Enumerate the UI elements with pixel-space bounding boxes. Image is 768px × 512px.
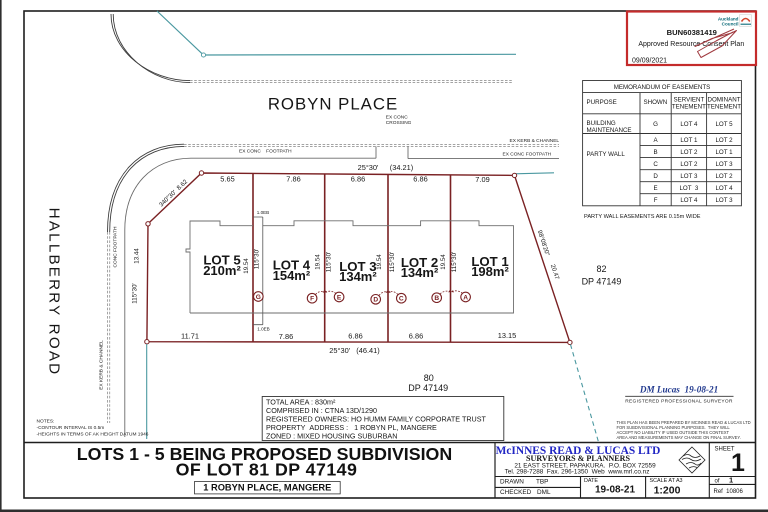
svg-text:F: F bbox=[310, 296, 314, 303]
svg-text:19.54: 19.54 bbox=[243, 258, 250, 274]
svg-text:B: B bbox=[434, 295, 439, 302]
svg-text:6.86: 6.86 bbox=[413, 174, 427, 183]
svg-text:7.09: 7.09 bbox=[475, 175, 489, 184]
svg-text:7.86: 7.86 bbox=[286, 174, 300, 183]
svg-text:LOT 3: LOT 3 bbox=[679, 185, 698, 192]
svg-text:115°30': 115°30' bbox=[254, 249, 261, 269]
svg-text:19-08-21: 19-08-21 bbox=[595, 485, 635, 496]
svg-text:PARTY WALL: PARTY WALL bbox=[587, 151, 626, 158]
svg-text:F: F bbox=[654, 197, 658, 204]
svg-text:CONC FOOTPATH: CONC FOOTPATH bbox=[113, 226, 119, 267]
svg-text:80: 80 bbox=[424, 373, 434, 383]
svg-text:PURPOSE: PURPOSE bbox=[587, 99, 617, 106]
svg-text:TENEMENT: TENEMENT bbox=[707, 103, 741, 110]
svg-text:AREA AND MEASUREMENTS MAY CHAN: AREA AND MEASUREMENTS MAY CHANGE ON FINA… bbox=[617, 435, 741, 440]
svg-text:1 ROBYN PLACE, MANGERE: 1 ROBYN PLACE, MANGERE bbox=[203, 483, 331, 493]
svg-text:115°30': 115°30' bbox=[326, 252, 333, 272]
svg-text:PARTY WALL EASEMENTS ARE 0.15m: PARTY WALL EASEMENTS ARE 0.15m WIDE bbox=[584, 214, 701, 220]
svg-text:of: of bbox=[715, 478, 720, 484]
svg-text:MAINTENANCE: MAINTENANCE bbox=[587, 127, 632, 134]
svg-text:D: D bbox=[653, 173, 658, 180]
svg-text:134m²: 134m² bbox=[401, 265, 439, 280]
svg-text:EX CONC: EX CONC bbox=[386, 114, 408, 120]
svg-text:Tel. 298-7288 Fax. 296-1350: Tel. 298-7288 Fax. 296-1350 Web www.mrl.… bbox=[505, 468, 650, 475]
svg-text:REGISTERED PROFESSIONAL SURVEY: REGISTERED PROFESSIONAL SURVEYOR bbox=[625, 399, 733, 405]
svg-text:DOMINANT: DOMINANT bbox=[708, 96, 741, 103]
svg-text:ZONED : MIXED HOUSING SUBURBAN: ZONED : MIXED HOUSING SUBURBAN bbox=[266, 432, 397, 441]
svg-text:D: D bbox=[373, 297, 378, 304]
svg-text:5.65: 5.65 bbox=[220, 174, 234, 183]
svg-text:6.86: 6.86 bbox=[348, 332, 362, 341]
svg-text:SERVIENT: SERVIENT bbox=[673, 96, 704, 103]
svg-text:82: 82 bbox=[596, 264, 606, 274]
svg-text:LOT 4: LOT 4 bbox=[680, 197, 698, 204]
svg-text:LOT 1: LOT 1 bbox=[680, 137, 698, 144]
svg-text:CROSSING: CROSSING bbox=[386, 120, 412, 126]
svg-text:E: E bbox=[337, 294, 342, 301]
svg-text:DML: DML bbox=[537, 489, 551, 496]
svg-text:19.54: 19.54 bbox=[315, 254, 322, 270]
svg-text:C: C bbox=[653, 161, 658, 168]
svg-text:BUN60381419: BUN60381419 bbox=[667, 28, 717, 37]
svg-text:DM Lucas 19-08-21: DM Lucas 19-08-21 bbox=[639, 385, 718, 395]
svg-text:Approved Resource Consent Plan: Approved Resource Consent Plan bbox=[638, 41, 744, 48]
svg-text:ROBYN PLACE: ROBYN PLACE bbox=[268, 95, 398, 114]
svg-text:198m²: 198m² bbox=[471, 264, 509, 279]
svg-text:154m²: 154m² bbox=[273, 268, 311, 283]
svg-text:LOT 2: LOT 2 bbox=[680, 149, 698, 156]
svg-text:LOT 3: LOT 3 bbox=[715, 197, 733, 204]
svg-text:1:200: 1:200 bbox=[654, 485, 681, 497]
svg-text:DP 47149: DP 47149 bbox=[582, 277, 622, 287]
svg-text:B: B bbox=[654, 149, 658, 156]
svg-text:09/09/2021: 09/09/2021 bbox=[632, 57, 667, 64]
svg-text:115°30': 115°30' bbox=[451, 252, 458, 272]
svg-text:19.54: 19.54 bbox=[440, 254, 447, 270]
svg-text:LOT 3: LOT 3 bbox=[715, 161, 733, 168]
svg-text:OF LOT 81 DP 47149: OF LOT 81 DP 47149 bbox=[176, 459, 358, 479]
svg-text:DATE: DATE bbox=[584, 478, 598, 484]
svg-text:TENEMENT: TENEMENT bbox=[672, 103, 706, 110]
svg-text:115°30': 115°30' bbox=[132, 283, 139, 303]
svg-text:A: A bbox=[463, 294, 468, 301]
svg-text:1: 1 bbox=[731, 449, 745, 477]
svg-text:G: G bbox=[256, 294, 261, 301]
svg-text:1.0EB: 1.0EB bbox=[257, 327, 270, 332]
svg-text:11.71: 11.71 bbox=[181, 332, 199, 341]
svg-text:BUILDING: BUILDING bbox=[587, 120, 616, 127]
svg-text:LOT 4: LOT 4 bbox=[680, 121, 698, 128]
svg-text:210m²: 210m² bbox=[203, 263, 241, 278]
svg-text:C: C bbox=[399, 296, 404, 303]
svg-text:7.86: 7.86 bbox=[279, 332, 293, 341]
svg-text:MEMORANDUM OF EASEMENTS: MEMORANDUM OF EASEMENTS bbox=[614, 84, 711, 91]
svg-text:-CONTOUR INTERVAL IS 0.5m: -CONTOUR INTERVAL IS 0.5m bbox=[37, 425, 105, 431]
svg-text:LOT 1: LOT 1 bbox=[715, 149, 733, 156]
svg-text:134m²: 134m² bbox=[339, 269, 377, 284]
svg-text:LOT 5: LOT 5 bbox=[715, 121, 733, 128]
svg-text:HALLBERRY ROAD: HALLBERRY ROAD bbox=[46, 208, 63, 377]
svg-text:25°30': 25°30' bbox=[358, 163, 379, 172]
svg-text:DP 47149: DP 47149 bbox=[408, 383, 448, 393]
svg-text:G: G bbox=[653, 121, 658, 128]
svg-text:6.86: 6.86 bbox=[351, 174, 365, 183]
svg-text:-HEIGHTS IN TERMS OF AK HEIGHT: -HEIGHTS IN TERMS OF AK HEIGHT DATUM 194… bbox=[37, 432, 149, 438]
svg-text:EX KERB & CHANNEL: EX KERB & CHANNEL bbox=[99, 340, 105, 390]
svg-text:SHOWN: SHOWN bbox=[644, 99, 668, 106]
svg-text:1.0EB: 1.0EB bbox=[257, 210, 270, 215]
svg-text:TBP: TBP bbox=[536, 479, 548, 486]
svg-text:EX KERB & CHANNEL: EX KERB & CHANNEL bbox=[510, 138, 560, 144]
svg-text:CHECKED: CHECKED bbox=[500, 489, 532, 496]
svg-text:25°30' (46.41): 25°30' (46.41) bbox=[329, 346, 379, 355]
svg-text:19.54: 19.54 bbox=[376, 254, 383, 270]
svg-text:13.44: 13.44 bbox=[134, 248, 141, 264]
svg-text:NOTES:: NOTES: bbox=[37, 419, 55, 425]
svg-text:Ref 10806: Ref 10806 bbox=[714, 489, 744, 495]
svg-text:13.15: 13.15 bbox=[498, 331, 517, 340]
svg-text:LOT 4: LOT 4 bbox=[715, 185, 733, 192]
svg-text:SCALE AT A3: SCALE AT A3 bbox=[650, 478, 683, 484]
svg-text:EX CONC FOOTPATH: EX CONC FOOTPATH bbox=[503, 152, 552, 158]
svg-text:LOT 2: LOT 2 bbox=[680, 161, 698, 168]
svg-text:6.86: 6.86 bbox=[409, 332, 423, 341]
svg-text:1: 1 bbox=[729, 476, 733, 485]
svg-text:115°30': 115°30' bbox=[389, 252, 396, 272]
svg-text:EX CONC FOOTPATH: EX CONC FOOTPATH bbox=[239, 149, 292, 155]
svg-text:LOT 2: LOT 2 bbox=[715, 173, 733, 180]
svg-text:DRAWN: DRAWN bbox=[500, 479, 524, 486]
svg-text:(34.21): (34.21) bbox=[390, 163, 413, 172]
svg-text:LOT 2: LOT 2 bbox=[715, 137, 733, 144]
svg-text:Council: Council bbox=[722, 22, 739, 27]
svg-text:E: E bbox=[654, 185, 658, 192]
svg-text:LOT 3: LOT 3 bbox=[680, 173, 698, 180]
